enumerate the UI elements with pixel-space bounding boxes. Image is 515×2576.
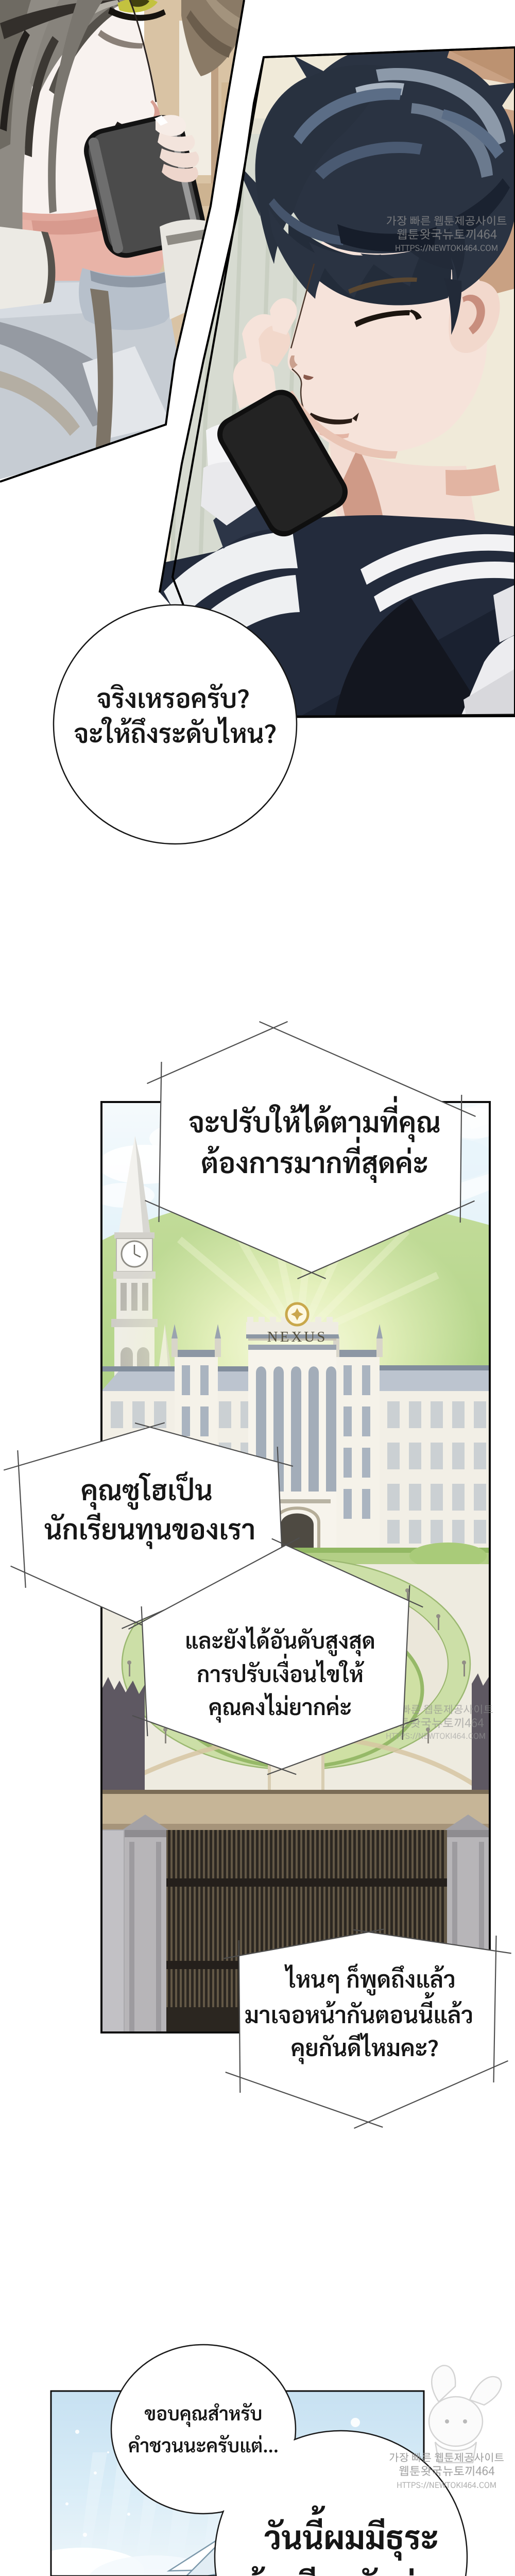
svg-text:NEXUS: NEXUS [267,1329,328,1345]
